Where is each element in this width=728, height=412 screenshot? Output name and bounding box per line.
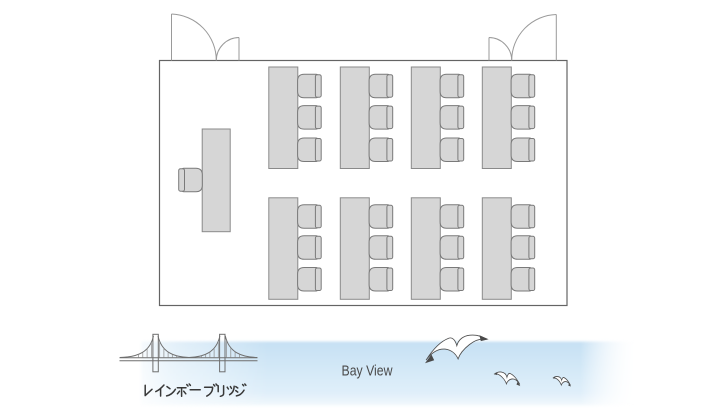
svg-text:Bay View: Bay View [342,363,393,380]
